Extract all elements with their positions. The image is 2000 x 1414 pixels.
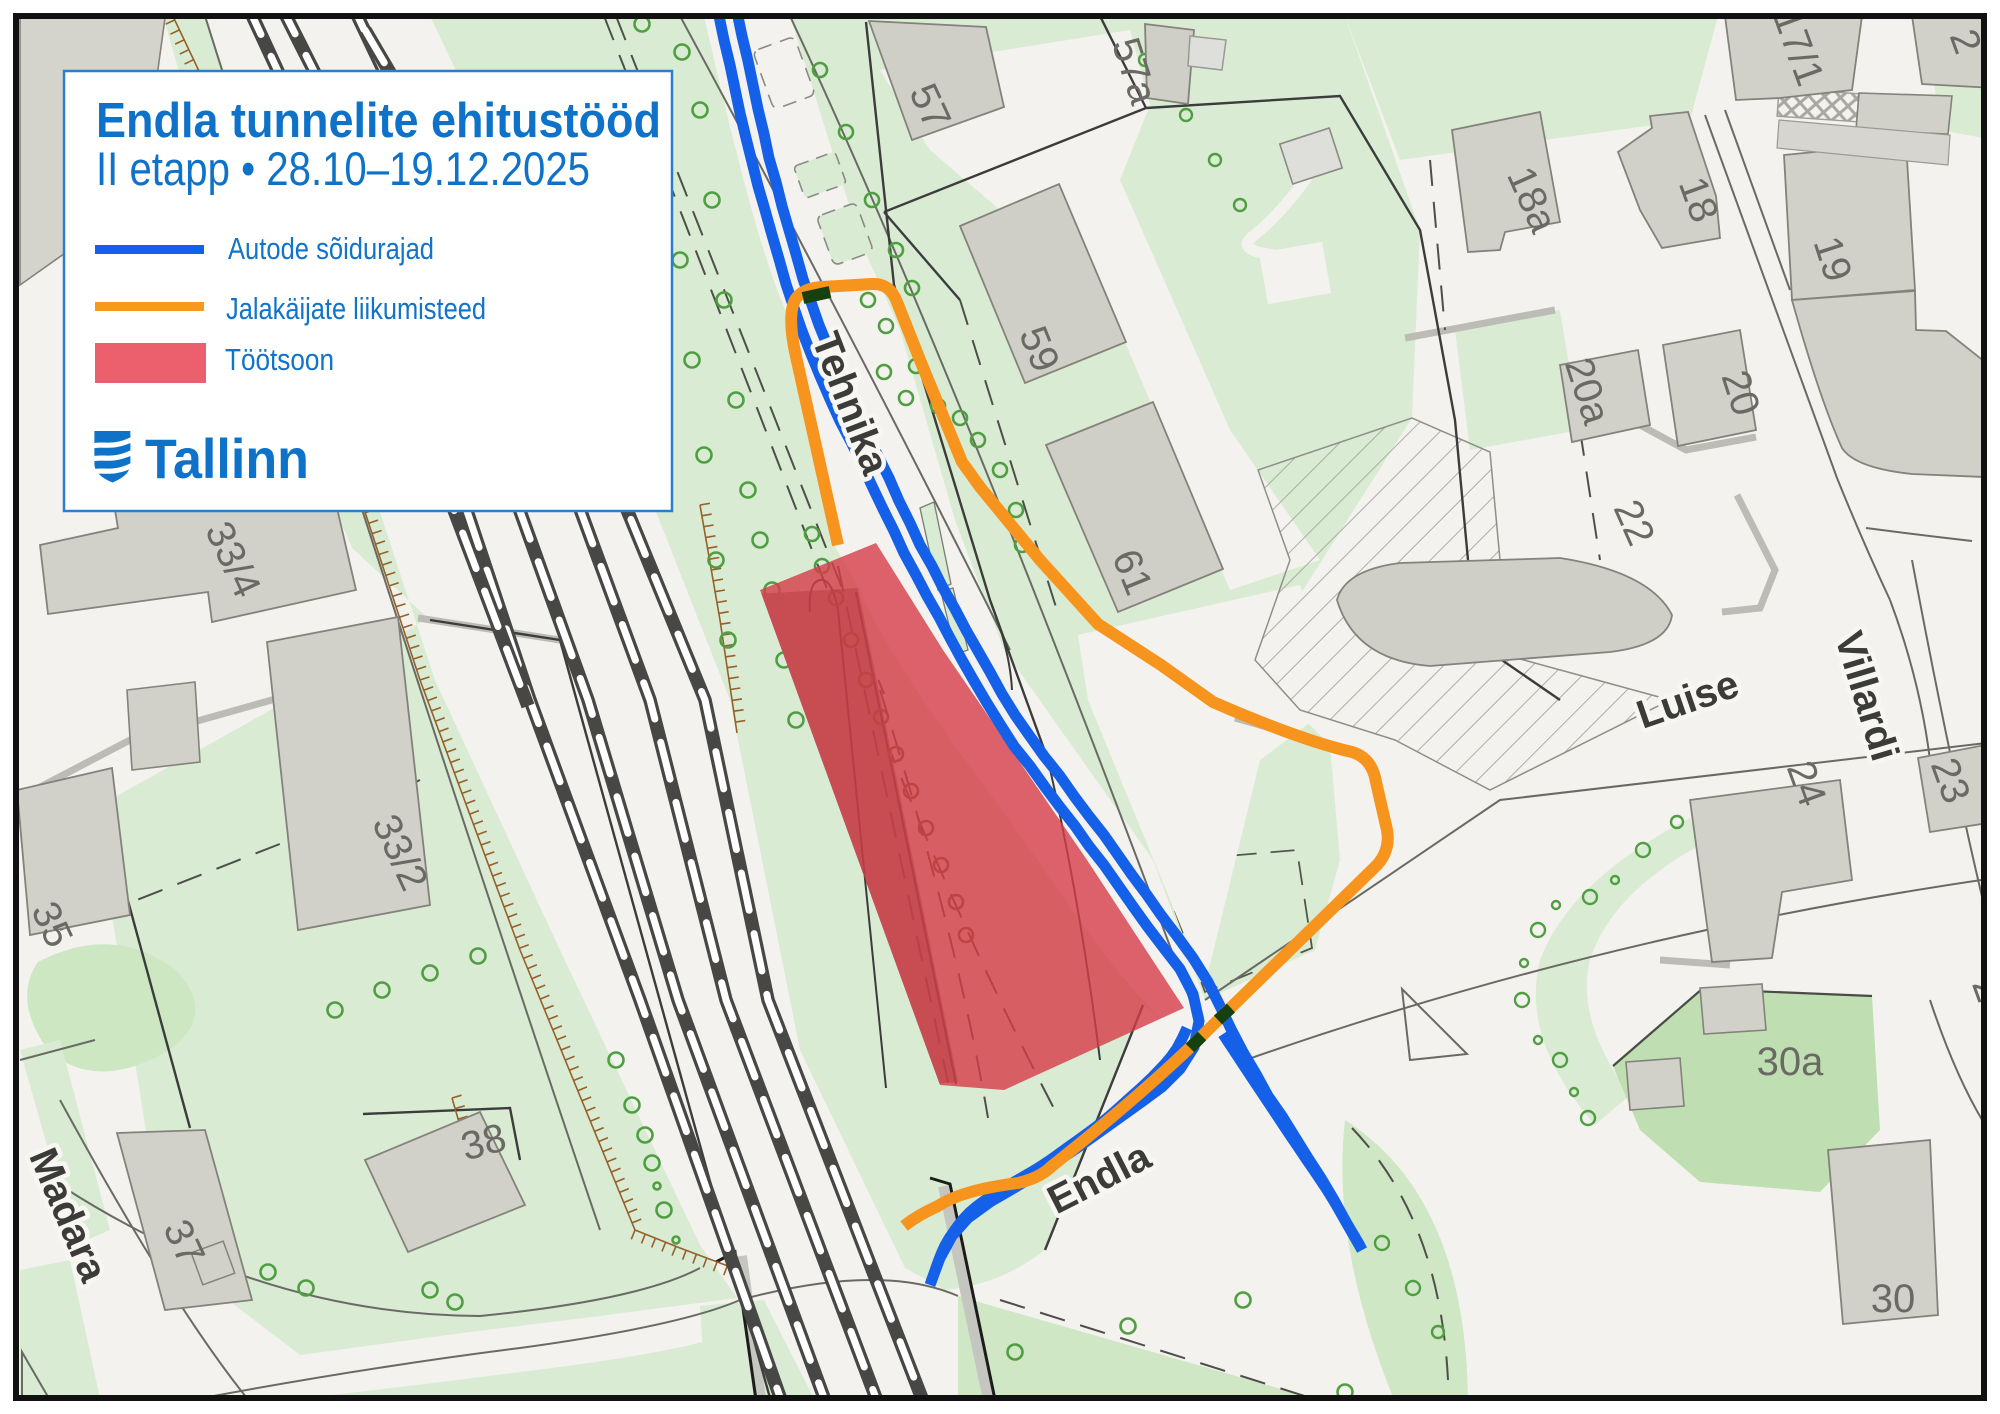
svg-text:Töötsoon: Töötsoon: [225, 342, 334, 377]
svg-text:Tallinn: Tallinn: [145, 427, 309, 490]
svg-text:30: 30: [1871, 1277, 1916, 1321]
svg-text:Autode sõidurajad: Autode sõidurajad: [228, 231, 434, 266]
svg-text:30a: 30a: [1757, 1040, 1824, 1084]
svg-text:Endla tunnelite ehitustööd: Endla tunnelite ehitustööd: [96, 94, 661, 148]
svg-text:Jalakäijate liikumisteed: Jalakäijate liikumisteed: [226, 291, 486, 326]
svg-text:II etapp • 28.10–19.12.2025: II etapp • 28.10–19.12.2025: [96, 142, 590, 195]
